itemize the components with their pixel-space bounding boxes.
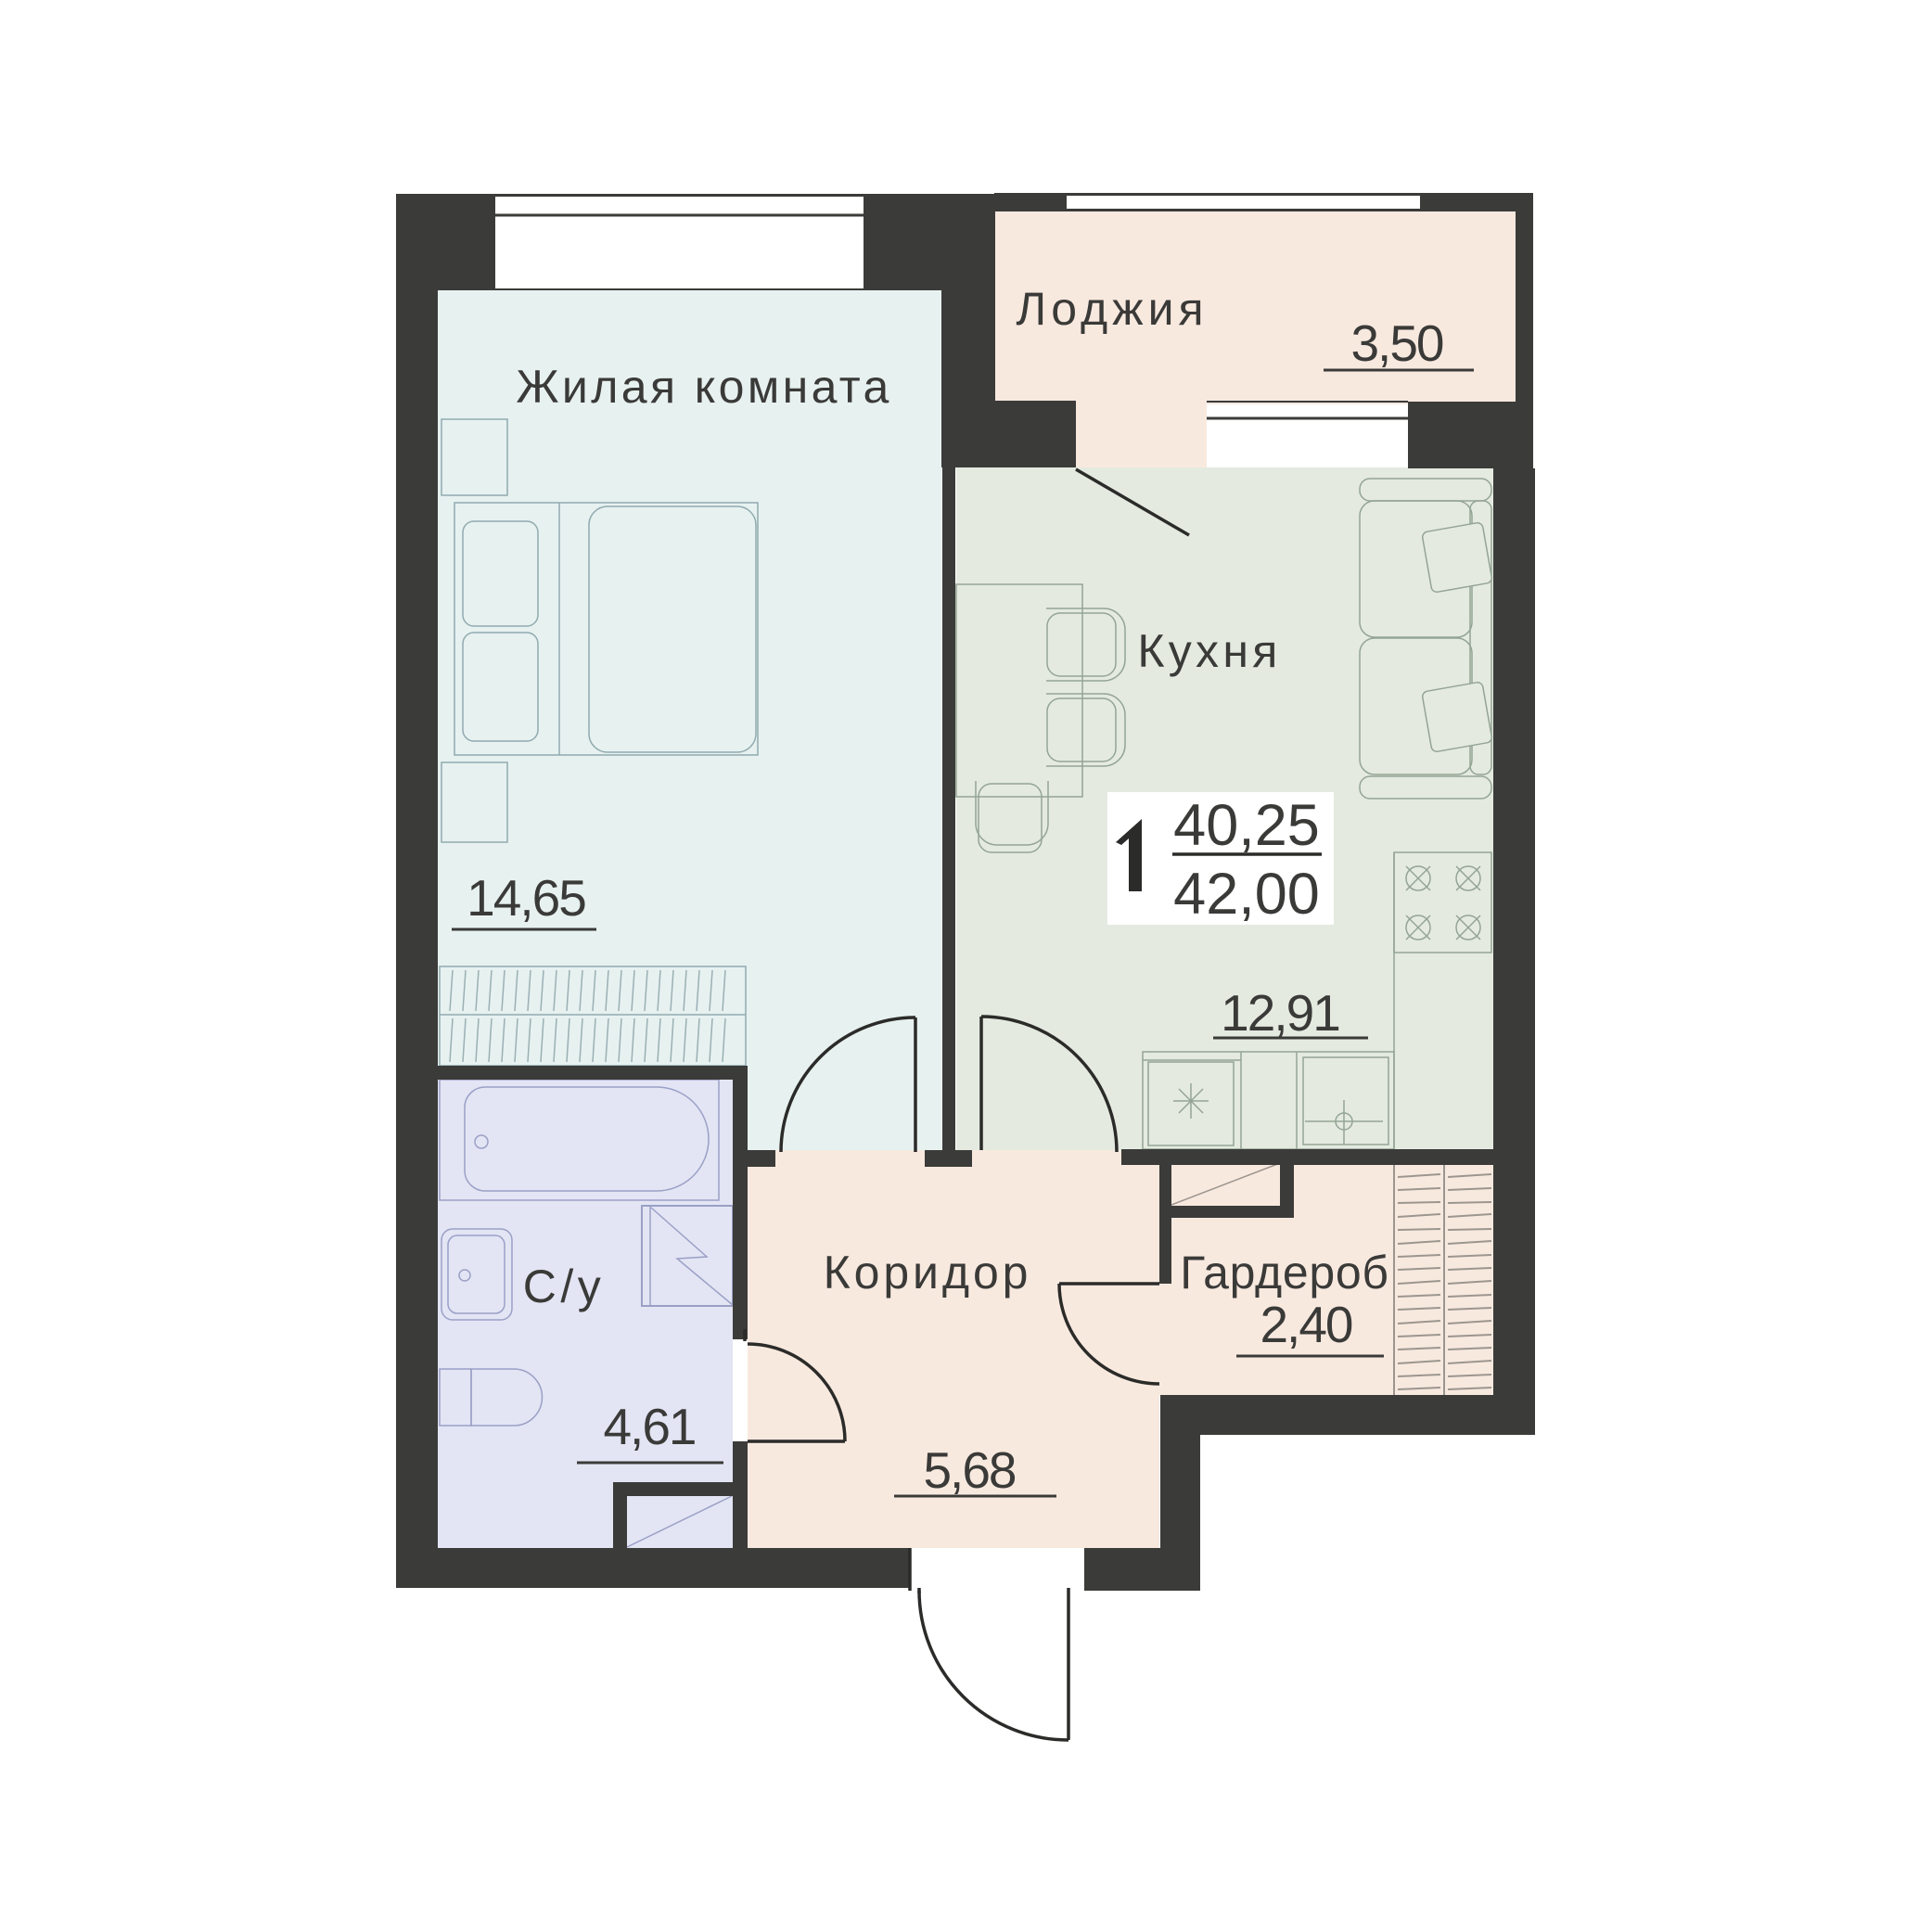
svg-text:3,50: 3,50 — [1350, 314, 1442, 372]
svg-text:С/у: С/у — [523, 1260, 606, 1312]
svg-text:Кухня: Кухня — [1137, 625, 1281, 677]
svg-text:2,40: 2,40 — [1260, 1296, 1351, 1353]
svg-text:Гардероб: Гардероб — [1180, 1247, 1389, 1299]
svg-text:40,25: 40,25 — [1173, 793, 1320, 858]
svg-text:4,61: 4,61 — [603, 1398, 695, 1455]
svg-text:14,65: 14,65 — [467, 869, 585, 927]
svg-text:5,68: 5,68 — [923, 1441, 1015, 1499]
svg-text:Коридор: Коридор — [824, 1247, 1032, 1299]
svg-text:Лоджия: Лоджия — [1016, 283, 1208, 335]
svg-text:42,00: 42,00 — [1173, 862, 1320, 927]
svg-text:12,91: 12,91 — [1221, 984, 1339, 1042]
svg-text:Жилая комната: Жилая комната — [516, 361, 891, 413]
